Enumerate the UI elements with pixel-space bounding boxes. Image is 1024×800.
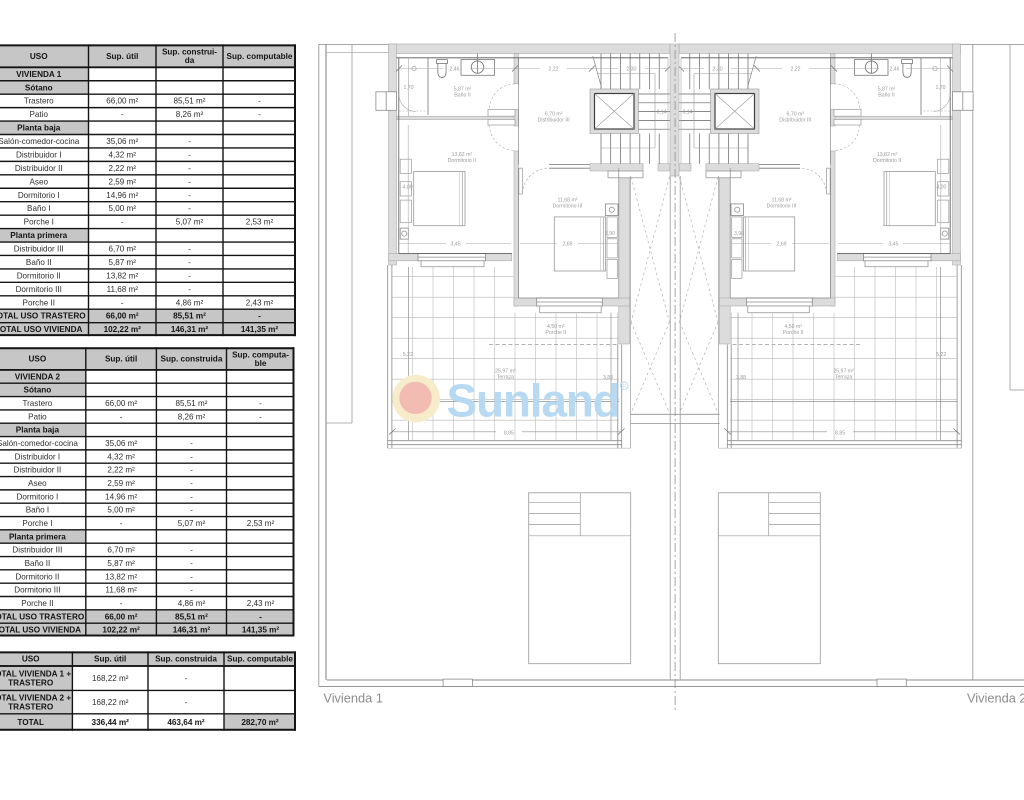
svg-text:Porche II: Porche II xyxy=(545,330,566,336)
svg-text:Sup. construida: Sup. construida xyxy=(161,355,223,364)
svg-text:5,07 m²: 5,07 m² xyxy=(176,218,204,227)
svg-text:-: - xyxy=(188,137,191,146)
svg-text:Dormitorio I: Dormitorio I xyxy=(16,492,58,501)
svg-text:Dormitorio III: Dormitorio III xyxy=(553,204,583,210)
svg-text:-: - xyxy=(188,191,191,200)
svg-text:463,64 m²: 463,64 m² xyxy=(167,718,205,727)
svg-text:-: - xyxy=(190,479,193,488)
svg-text:TRASTERO: TRASTERO xyxy=(8,679,54,688)
svg-text:102,22 m²: 102,22 m² xyxy=(102,626,140,635)
svg-text:2,69: 2,69 xyxy=(562,242,572,248)
svg-text:TOTAL USO TRASTERO: TOTAL USO TRASTERO xyxy=(0,312,86,321)
svg-text:Porche II: Porche II xyxy=(783,330,804,336)
svg-text:Porche I: Porche I xyxy=(22,519,52,528)
svg-text:Dormitorio I: Dormitorio I xyxy=(18,191,60,200)
svg-text:Dormitorio III: Dormitorio III xyxy=(16,285,62,294)
svg-text:-: - xyxy=(258,312,261,321)
svg-text:-: - xyxy=(258,110,261,119)
svg-text:Sunland: Sunland xyxy=(446,374,619,426)
svg-text:5,00 m²: 5,00 m² xyxy=(109,204,137,213)
svg-text:-: - xyxy=(120,412,123,421)
svg-text:Distribuidor II: Distribuidor II xyxy=(14,466,62,475)
svg-text:4,00: 4,00 xyxy=(936,185,946,191)
svg-text:TOTAL USO VIVIENDA: TOTAL USO VIVIENDA xyxy=(0,626,81,635)
svg-text:5,22: 5,22 xyxy=(936,352,946,358)
svg-text:Sup. construida: Sup. construida xyxy=(155,655,217,664)
svg-text:Distribuidor I: Distribuidor I xyxy=(15,452,60,461)
svg-text:4,32 m²: 4,32 m² xyxy=(109,150,137,159)
svg-text:2,69: 2,69 xyxy=(776,242,786,248)
svg-text:Baño I: Baño I xyxy=(27,204,50,213)
svg-text:Baño II: Baño II xyxy=(26,258,52,267)
svg-text:Dormitorio III: Dormitorio III xyxy=(767,204,797,210)
svg-text:Sótano: Sótano xyxy=(25,83,53,92)
svg-text:2,22 m²: 2,22 m² xyxy=(107,466,135,475)
svg-text:2,22: 2,22 xyxy=(790,66,800,72)
svg-text:3,88: 3,88 xyxy=(736,375,746,381)
svg-text:2,43 m²: 2,43 m² xyxy=(246,298,274,307)
svg-text:2,43 m²: 2,43 m² xyxy=(247,599,275,608)
svg-text:Sup. útil: Sup. útil xyxy=(94,655,126,664)
svg-text:-: - xyxy=(190,572,193,581)
svg-text:Porche II: Porche II xyxy=(23,298,55,307)
svg-text:66,00 m²: 66,00 m² xyxy=(105,612,138,621)
svg-text:Porche I: Porche I xyxy=(24,218,54,227)
svg-text:Baño II: Baño II xyxy=(878,92,894,98)
svg-text:35,06 m²: 35,06 m² xyxy=(105,439,137,448)
svg-text:Dormitorio II: Dormitorio II xyxy=(15,572,59,581)
svg-text:-: - xyxy=(188,258,191,267)
svg-text:2,46: 2,46 xyxy=(889,66,899,72)
svg-text:da: da xyxy=(185,56,195,65)
svg-text:VIVIENDA 2: VIVIENDA 2 xyxy=(15,372,61,381)
svg-text:R: R xyxy=(622,384,626,390)
svg-text:336,44 m²: 336,44 m² xyxy=(92,718,130,727)
svg-text:14,96 m²: 14,96 m² xyxy=(106,191,138,200)
svg-text:5,00 m²: 5,00 m² xyxy=(107,506,135,515)
svg-text:4,32 m²: 4,32 m² xyxy=(107,452,135,461)
svg-text:USO: USO xyxy=(30,52,48,61)
svg-text:2,46: 2,46 xyxy=(449,66,459,72)
svg-text:66,00 m²: 66,00 m² xyxy=(105,399,137,408)
svg-text:-: - xyxy=(190,506,193,515)
svg-text:Vivienda 2: Vivienda 2 xyxy=(967,691,1024,706)
svg-text:1,70: 1,70 xyxy=(403,85,413,91)
svg-text:TOTAL VIVIENDA 2 +: TOTAL VIVIENDA 2 + xyxy=(0,694,71,703)
svg-text:6,70 m²: 6,70 m² xyxy=(107,546,135,555)
svg-text:66,00 m²: 66,00 m² xyxy=(106,97,138,106)
svg-text:Patio: Patio xyxy=(28,412,47,421)
svg-text:2,59 m²: 2,59 m² xyxy=(109,177,137,186)
svg-text:USO: USO xyxy=(29,355,47,364)
svg-text:85,51 m²: 85,51 m² xyxy=(174,97,206,106)
svg-text:TOTAL USO VIVIENDA: TOTAL USO VIVIENDA xyxy=(0,325,83,334)
svg-text:Vivienda 1: Vivienda 1 xyxy=(323,691,383,706)
svg-text:Distribuidor III: Distribuidor III xyxy=(14,245,64,254)
svg-text:TRASTERO: TRASTERO xyxy=(8,703,54,712)
svg-text:Aseo: Aseo xyxy=(30,177,49,186)
svg-text:8,85: 8,85 xyxy=(504,431,514,437)
svg-text:-: - xyxy=(121,298,124,307)
svg-text:2,53 m²: 2,53 m² xyxy=(246,218,274,227)
svg-text:Planta primera: Planta primera xyxy=(10,231,67,240)
svg-text:5,22: 5,22 xyxy=(403,352,413,358)
svg-text:Porche II: Porche II xyxy=(21,599,53,608)
svg-text:3,14: 3,14 xyxy=(656,110,666,116)
svg-text:-: - xyxy=(188,245,191,254)
svg-text:66,00 m²: 66,00 m² xyxy=(106,312,139,321)
svg-text:-: - xyxy=(121,110,124,119)
svg-text:6,70 m²: 6,70 m² xyxy=(109,245,137,254)
svg-text:-: - xyxy=(190,546,193,555)
svg-text:Aseo: Aseo xyxy=(28,479,47,488)
svg-text:Salón-comedor-cocina: Salón-comedor-cocina xyxy=(0,137,80,146)
svg-text:141,35 m²: 141,35 m² xyxy=(242,626,280,635)
svg-text:Sup. útil: Sup. útil xyxy=(105,355,137,364)
svg-text:TOTAL USO TRASTERO: TOTAL USO TRASTERO xyxy=(0,612,85,621)
svg-text:35,06 m²: 35,06 m² xyxy=(106,137,138,146)
svg-text:-: - xyxy=(188,150,191,159)
svg-text:-: - xyxy=(121,218,124,227)
svg-text:-: - xyxy=(188,285,191,294)
svg-text:3,45: 3,45 xyxy=(451,242,461,248)
svg-text:ble: ble xyxy=(255,359,267,368)
svg-text:-: - xyxy=(190,492,193,501)
svg-text:102,22 m²: 102,22 m² xyxy=(104,325,142,334)
svg-text:8,26 m²: 8,26 m² xyxy=(178,412,206,421)
svg-text:2,53 m²: 2,53 m² xyxy=(247,519,275,528)
svg-text:USO: USO xyxy=(22,655,40,664)
svg-text:13,82 m²: 13,82 m² xyxy=(106,271,138,280)
svg-text:Dormitorio II: Dormitorio II xyxy=(873,158,901,164)
svg-text:Sótano: Sótano xyxy=(24,386,52,395)
svg-text:11,68 m²: 11,68 m² xyxy=(107,285,139,294)
svg-text:Baño II: Baño II xyxy=(454,92,470,98)
svg-text:85,51 m²: 85,51 m² xyxy=(175,612,208,621)
svg-text:Distribuidor I: Distribuidor I xyxy=(16,150,61,159)
svg-text:-: - xyxy=(188,177,191,186)
svg-text:13,82 m²: 13,82 m² xyxy=(105,572,137,581)
svg-text:Planta baja: Planta baja xyxy=(17,124,61,133)
svg-text:-: - xyxy=(190,559,193,568)
svg-text:Salón-comedor-cocina: Salón-comedor-cocina xyxy=(0,439,78,448)
svg-text:3,14: 3,14 xyxy=(682,110,692,116)
svg-text:3,90: 3,90 xyxy=(734,231,744,237)
svg-text:-: - xyxy=(188,271,191,280)
svg-text:2,30: 2,30 xyxy=(626,66,636,72)
svg-text:Sup. computable: Sup. computable xyxy=(227,655,293,664)
svg-text:168,22 m²: 168,22 m² xyxy=(92,698,129,707)
svg-text:1,70: 1,70 xyxy=(935,85,945,91)
svg-text:Dormitorio II: Dormitorio II xyxy=(17,271,61,280)
svg-text:11,68 m²: 11,68 m² xyxy=(105,586,137,595)
svg-text:5,07 m²: 5,07 m² xyxy=(178,519,206,528)
svg-text:3,45: 3,45 xyxy=(888,242,898,248)
svg-text:Baño II: Baño II xyxy=(25,559,51,568)
svg-text:85,51 m²: 85,51 m² xyxy=(175,399,207,408)
svg-text:Dormitorio III: Dormitorio III xyxy=(14,586,60,595)
svg-text:Baño I: Baño I xyxy=(26,506,49,515)
svg-text:-: - xyxy=(190,466,193,475)
svg-text:4,00: 4,00 xyxy=(403,185,413,191)
svg-text:-: - xyxy=(190,439,193,448)
svg-text:-: - xyxy=(188,164,191,173)
svg-text:-: - xyxy=(258,97,261,106)
svg-text:Distribuidor III: Distribuidor III xyxy=(779,118,811,124)
svg-text:Trastero: Trastero xyxy=(22,399,52,408)
svg-text:Sup. útil: Sup. útil xyxy=(106,52,138,61)
svg-text:Patio: Patio xyxy=(30,110,49,119)
svg-text:2,22: 2,22 xyxy=(548,66,558,72)
svg-text:-: - xyxy=(120,519,123,528)
svg-text:Distribuidor III: Distribuidor III xyxy=(538,118,570,124)
svg-text:-: - xyxy=(120,599,123,608)
svg-text:5,87 m²: 5,87 m² xyxy=(109,258,137,267)
svg-text:Trastero: Trastero xyxy=(24,97,54,106)
svg-text:5,87 m²: 5,87 m² xyxy=(107,559,135,568)
svg-text:-: - xyxy=(259,412,262,421)
svg-text:Distribuidor II: Distribuidor II xyxy=(15,164,63,173)
svg-text:141,35 m²: 141,35 m² xyxy=(241,325,279,334)
svg-text:-: - xyxy=(188,204,191,213)
svg-text:VIVIENDA 1: VIVIENDA 1 xyxy=(16,70,62,79)
svg-text:TOTAL: TOTAL xyxy=(17,718,44,727)
svg-text:8,85: 8,85 xyxy=(835,431,845,437)
svg-text:168,22 m²: 168,22 m² xyxy=(92,674,129,683)
svg-text:146,31 m²: 146,31 m² xyxy=(173,626,211,635)
svg-text:4,86 m²: 4,86 m² xyxy=(176,298,204,307)
svg-text:3,90: 3,90 xyxy=(605,231,615,237)
svg-text:TOTAL VIVIENDA 1 +: TOTAL VIVIENDA 1 + xyxy=(0,670,71,679)
svg-text:146,31 m²: 146,31 m² xyxy=(171,325,209,334)
svg-text:-: - xyxy=(190,586,193,595)
svg-text:Sup. computable: Sup. computable xyxy=(227,52,293,61)
svg-text:14,96 m²: 14,96 m² xyxy=(105,492,137,501)
svg-text:Terraza: Terraza xyxy=(835,374,852,380)
svg-text:2,22 m²: 2,22 m² xyxy=(109,164,137,173)
svg-text:Dormitorio II: Dormitorio II xyxy=(448,158,476,164)
svg-text:-: - xyxy=(185,698,188,707)
svg-text:Distribuidor III: Distribuidor III xyxy=(12,546,62,555)
svg-text:85,51 m²: 85,51 m² xyxy=(173,312,206,321)
svg-text:Planta primera: Planta primera xyxy=(9,532,66,541)
svg-text:2,59 m²: 2,59 m² xyxy=(107,479,135,488)
svg-text:-: - xyxy=(190,452,193,461)
svg-text:-: - xyxy=(259,399,262,408)
svg-text:-: - xyxy=(185,674,188,683)
svg-text:282,70 m²: 282,70 m² xyxy=(241,718,279,727)
svg-text:2,30: 2,30 xyxy=(713,66,723,72)
svg-text:8,26 m²: 8,26 m² xyxy=(176,110,204,119)
svg-text:Planta baja: Planta baja xyxy=(16,426,60,435)
svg-text:-: - xyxy=(259,612,262,621)
svg-text:4,86 m²: 4,86 m² xyxy=(178,599,206,608)
